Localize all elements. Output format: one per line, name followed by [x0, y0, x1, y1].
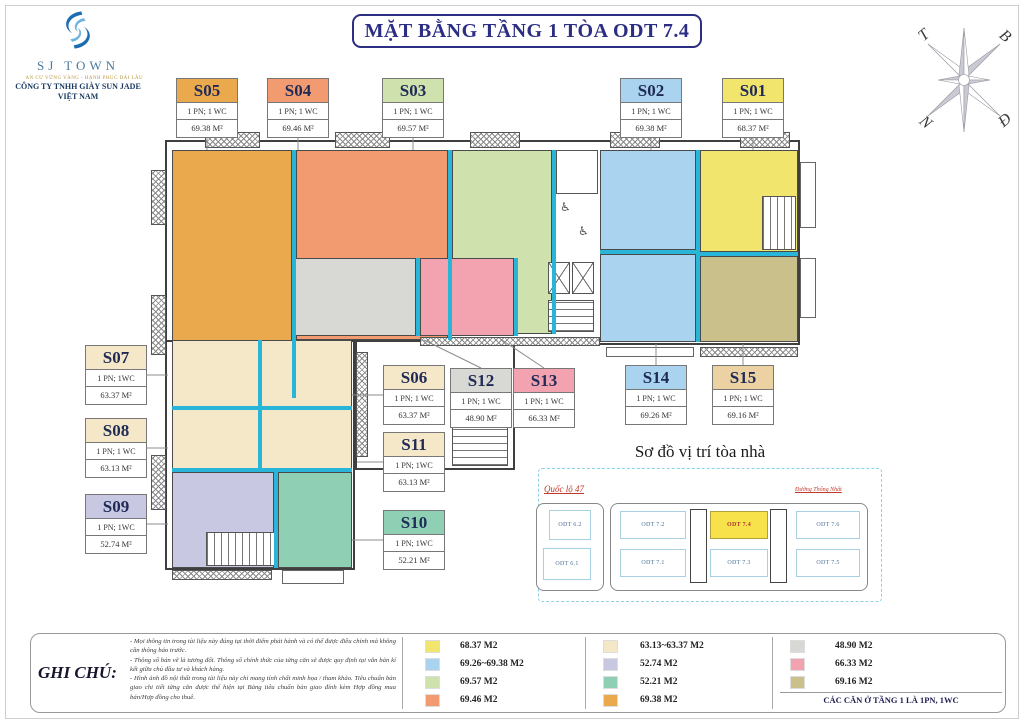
entrance-stoop	[282, 570, 344, 584]
unit-region-s14	[600, 254, 696, 342]
legend-swatch	[425, 694, 440, 707]
unit-tag-s10: S10 1 PN; 1WC 52.21 M²	[383, 510, 445, 570]
legend-footnote: CÁC CĂN Ở TẦNG 1 LÀ 1PN, 1WC	[778, 695, 1004, 705]
unit-tag-rooms: 1 PN; 1 WC	[86, 443, 146, 460]
unit-tag-header: S08	[86, 419, 146, 443]
unit-tag-header: S04	[268, 79, 328, 103]
map-building-odt74-highlighted: ODT 7.4	[710, 511, 768, 539]
logo-name: SJ TOWN	[14, 58, 142, 74]
unit-tag-header: S03	[383, 79, 443, 103]
balcony	[800, 258, 816, 318]
legend-divider	[402, 637, 403, 709]
unit-tag-header: S02	[621, 79, 681, 103]
unit-tag-header: S06	[384, 366, 444, 390]
unit-tag-rooms: 1 PN; 1 WC	[268, 103, 328, 120]
stairwell	[762, 196, 796, 250]
unit-tag-header: S09	[86, 495, 146, 519]
unit-tag-rooms: 1 PN; 1 WC	[514, 393, 574, 410]
unit-divider	[600, 250, 696, 254]
logo: SJ TOWN AN CƯ VỮNG VÀNG - HẠNH PHÚC DÀI …	[14, 8, 142, 101]
legend-label: 69.38 M2	[640, 694, 677, 707]
unit-tag-area: 63.13 M²	[384, 474, 444, 491]
unit-divider	[172, 468, 352, 472]
legend-note: - Thông số bản vẽ là tương đối. Thông số…	[130, 656, 396, 675]
unit-tag-area: 69.26 M²	[626, 407, 686, 424]
unit-tag-rooms: 1 PN; 1 WC	[621, 103, 681, 120]
legend-divider	[585, 637, 586, 709]
unit-tag-area: 66.33 M²	[514, 410, 574, 427]
legend-label: 48.90 M2	[835, 640, 872, 653]
lobby-room	[556, 150, 598, 194]
unit-region-s05	[172, 150, 292, 342]
wall-hatch	[151, 170, 166, 225]
unit-tag-s11: S11 1 PN; 1WC 63.13 M²	[383, 432, 445, 492]
floorplan-page: SJ TOWN AN CƯ VỮNG VÀNG - HẠNH PHÚC DÀI …	[0, 0, 1024, 724]
road-label-right: Đường Thống Nhất	[795, 487, 842, 493]
legend-swatch	[790, 676, 805, 689]
unit-tag-s13: S13 1 PN; 1 WC 66.33 M²	[513, 368, 575, 428]
wall-hatch	[420, 337, 600, 346]
unit-tag-rooms: 1 PN; 1 WC	[451, 393, 511, 410]
logo-tagline: AN CƯ VỮNG VÀNG - HẠNH PHÚC DÀI LÂU	[26, 76, 131, 81]
unit-tag-area: 63.37 M²	[86, 387, 146, 404]
legend-swatch	[790, 640, 805, 653]
legend-label: 63.13~63.37 M2	[640, 640, 704, 653]
unit-region-s10	[278, 472, 352, 568]
unit-tag-header: S15	[713, 366, 773, 390]
legend-label: 68.37 M2	[460, 640, 497, 653]
unit-tag-s09: S09 1 PN; 1WC 52.74 M²	[85, 494, 147, 554]
compass-rose-icon: B Đ N T	[912, 22, 1016, 134]
logo-country: VIỆT NAM	[14, 92, 142, 101]
unit-tag-s14: S14 1 PN; 1 WC 69.26 M²	[625, 365, 687, 425]
map-building-odt62: ODT 6.2	[549, 510, 591, 540]
unit-tag-rooms: 1 PN; 1 WC	[723, 103, 783, 120]
unit-tag-area: 48.90 M²	[451, 410, 511, 427]
unit-tag-rooms: 1 PN; 1 WC	[713, 390, 773, 407]
unit-divider	[696, 150, 700, 342]
map-building-odt61: ODT 6.1	[543, 548, 591, 580]
unit-region-s15	[700, 256, 798, 342]
map-building-odt73: ODT 7.3	[710, 549, 768, 577]
unit-divider	[416, 258, 420, 336]
wall-hatch	[172, 570, 272, 580]
legend-label: 69.46 M2	[460, 694, 497, 707]
wall-hatch	[151, 455, 166, 510]
unit-tag-area: 69.16 M²	[713, 407, 773, 424]
logo-company: CÔNG TY TNHH GIÀY SUN JADE	[14, 82, 142, 91]
unit-tag-header: S05	[177, 79, 237, 103]
wall-hatch	[151, 295, 166, 355]
unit-tag-s08: S08 1 PN; 1 WC 63.13 M²	[85, 418, 147, 478]
unit-tag-s02: S02 1 PN; 1 WC 69.38 M²	[620, 78, 682, 138]
unit-divider	[258, 340, 262, 470]
unit-tag-header: S13	[514, 369, 574, 393]
unit-divider	[552, 150, 556, 334]
legend-swatch	[790, 658, 805, 671]
unit-tag-s01: S01 1 PN; 1 WC 68.37 M²	[722, 78, 784, 138]
legend-note: - Mọi thông tin trong tài liệu này đúng …	[130, 637, 396, 656]
legend-swatch	[603, 694, 618, 707]
map-building-odt71: ODT 7.1	[620, 549, 686, 577]
compass-north-label: B	[996, 27, 1015, 46]
unit-region-s06-s07-s08-s11	[172, 340, 352, 470]
unit-region-s13	[420, 258, 514, 336]
legend-note: - Hình ảnh đồ nội thất trong tài liệu nà…	[130, 674, 396, 702]
unit-divider	[514, 258, 518, 336]
unit-tag-s03: S03 1 PN; 1 WC 69.57 M²	[382, 78, 444, 138]
wall-hatch	[356, 352, 368, 457]
unit-tag-s07: S07 1 PN; 1WC 63.37 M²	[85, 345, 147, 405]
unit-tag-header: S11	[384, 433, 444, 457]
legend-label: 66.33 M2	[835, 658, 872, 671]
unit-tag-s04: S04 1 PN; 1 WC 69.46 M²	[267, 78, 329, 138]
unit-divider	[448, 150, 452, 340]
unit-tag-area: 52.21 M²	[384, 552, 444, 569]
unit-divider	[172, 406, 352, 410]
legend-swatch	[603, 640, 618, 653]
stairwell	[206, 532, 276, 566]
page-title: MẶT BẰNG TẦNG 1 TÒA ODT 7.4	[352, 14, 702, 48]
unit-tag-s06: S06 1 PN; 1 WC 63.37 M²	[383, 365, 445, 425]
elevator-shaft	[572, 262, 594, 294]
wheelchair-icon: ♿	[560, 200, 571, 214]
unit-tag-header: S14	[626, 366, 686, 390]
unit-tag-area: 69.57 M²	[383, 120, 443, 137]
unit-tag-rooms: 1 PN; 1 WC	[383, 103, 443, 120]
wall-hatch	[470, 132, 520, 148]
compass-west-label: T	[915, 25, 934, 44]
legend-footnote-divider	[780, 692, 1002, 693]
unit-tag-header: S01	[723, 79, 783, 103]
legend-swatch	[425, 640, 440, 653]
unit-tag-rooms: 1 PN; 1WC	[384, 457, 444, 474]
wall-hatch	[700, 347, 798, 357]
unit-tag-rooms: 1 PN; 1 WC	[177, 103, 237, 120]
unit-tag-area: 63.37 M²	[384, 407, 444, 424]
unit-divider	[700, 252, 798, 256]
map-building-odt75: ODT 7.5	[796, 549, 860, 577]
sj-town-logo-icon	[52, 8, 104, 52]
legend-swatch	[425, 658, 440, 671]
unit-tag-area: 69.38 M²	[621, 120, 681, 137]
legend-notes: - Mọi thông tin trong tài liệu này đúng …	[130, 637, 396, 702]
legend-swatch	[603, 676, 618, 689]
unit-tag-rooms: 1 PN; 1WC	[86, 519, 146, 536]
unit-tag-area: 69.38 M²	[177, 120, 237, 137]
balcony	[800, 162, 816, 228]
legend-label: 69.26~69.38 M2	[460, 658, 524, 671]
road-label-left: Quốc lộ 47	[544, 484, 584, 494]
unit-tag-rooms: 1 PN; 1WC	[384, 535, 444, 552]
compass-south-label: N	[915, 112, 936, 133]
unit-tag-rooms: 1 PN; 1WC	[86, 370, 146, 387]
unit-tag-rooms: 1 PN; 1 WC	[626, 390, 686, 407]
unit-tag-s15: S15 1 PN; 1 WC 69.16 M²	[712, 365, 774, 425]
legend-swatch	[425, 676, 440, 689]
unit-region-s02	[600, 150, 696, 250]
legend-label: 52.74 M2	[640, 658, 677, 671]
location-map-title: Sơ đồ vị trí tòa nhà	[560, 442, 840, 462]
unit-tag-area: 52.74 M²	[86, 536, 146, 553]
unit-tag-area: 68.37 M²	[723, 120, 783, 137]
unit-divider	[292, 150, 296, 398]
unit-tag-rooms: 1 PN; 1 WC	[384, 390, 444, 407]
unit-tag-header: S12	[451, 369, 511, 393]
map-building-odt72: ODT 7.2	[620, 511, 686, 539]
unit-tag-header: S10	[384, 511, 444, 535]
unit-tag-area: 69.46 M²	[268, 120, 328, 137]
unit-tag-area: 63.13 M²	[86, 460, 146, 477]
unit-divider	[274, 472, 278, 568]
balcony	[606, 347, 694, 357]
legend-label: 69.16 M2	[835, 676, 872, 689]
unit-tag-s05: S05 1 PN; 1 WC 69.38 M²	[176, 78, 238, 138]
legend-divider	[772, 637, 773, 709]
legend-label: 69.57 M2	[460, 676, 497, 689]
map-tower	[690, 509, 707, 583]
unit-tag-header: S07	[86, 346, 146, 370]
legend-swatch	[603, 658, 618, 671]
unit-region-s12	[294, 258, 416, 336]
map-building-odt76: ODT 7.6	[796, 511, 860, 539]
wheelchair-icon: ♿	[578, 224, 589, 238]
legend-label: 52.21 M2	[640, 676, 677, 689]
map-tower	[770, 509, 787, 583]
legend-heading: GHI CHÚ:	[38, 633, 128, 713]
unit-tag-s12: S12 1 PN; 1 WC 48.90 M²	[450, 368, 512, 428]
